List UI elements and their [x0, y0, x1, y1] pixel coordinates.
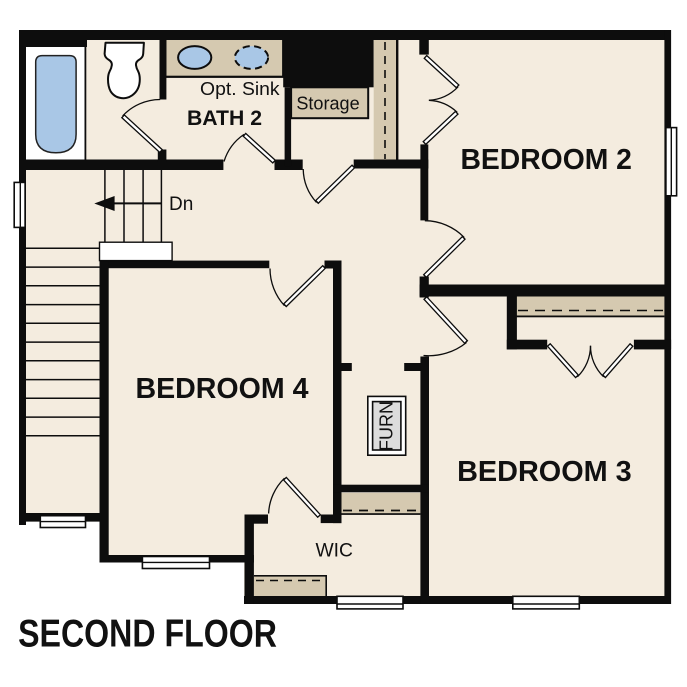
svg-text:BEDROOM 2: BEDROOM 2 — [460, 144, 632, 176]
svg-text:Storage: Storage — [296, 94, 359, 114]
svg-text:WIC: WIC — [315, 541, 353, 562]
svg-text:SECOND FLOOR: SECOND FLOOR — [18, 613, 277, 656]
svg-text:FURN: FURN — [377, 401, 397, 451]
svg-text:Dn: Dn — [169, 194, 193, 215]
svg-text:BEDROOM 4: BEDROOM 4 — [136, 373, 309, 405]
svg-text:Opt. Sink: Opt. Sink — [200, 79, 281, 99]
svg-text:BATH 2: BATH 2 — [187, 106, 262, 130]
svg-text:BEDROOM 3: BEDROOM 3 — [457, 456, 632, 488]
